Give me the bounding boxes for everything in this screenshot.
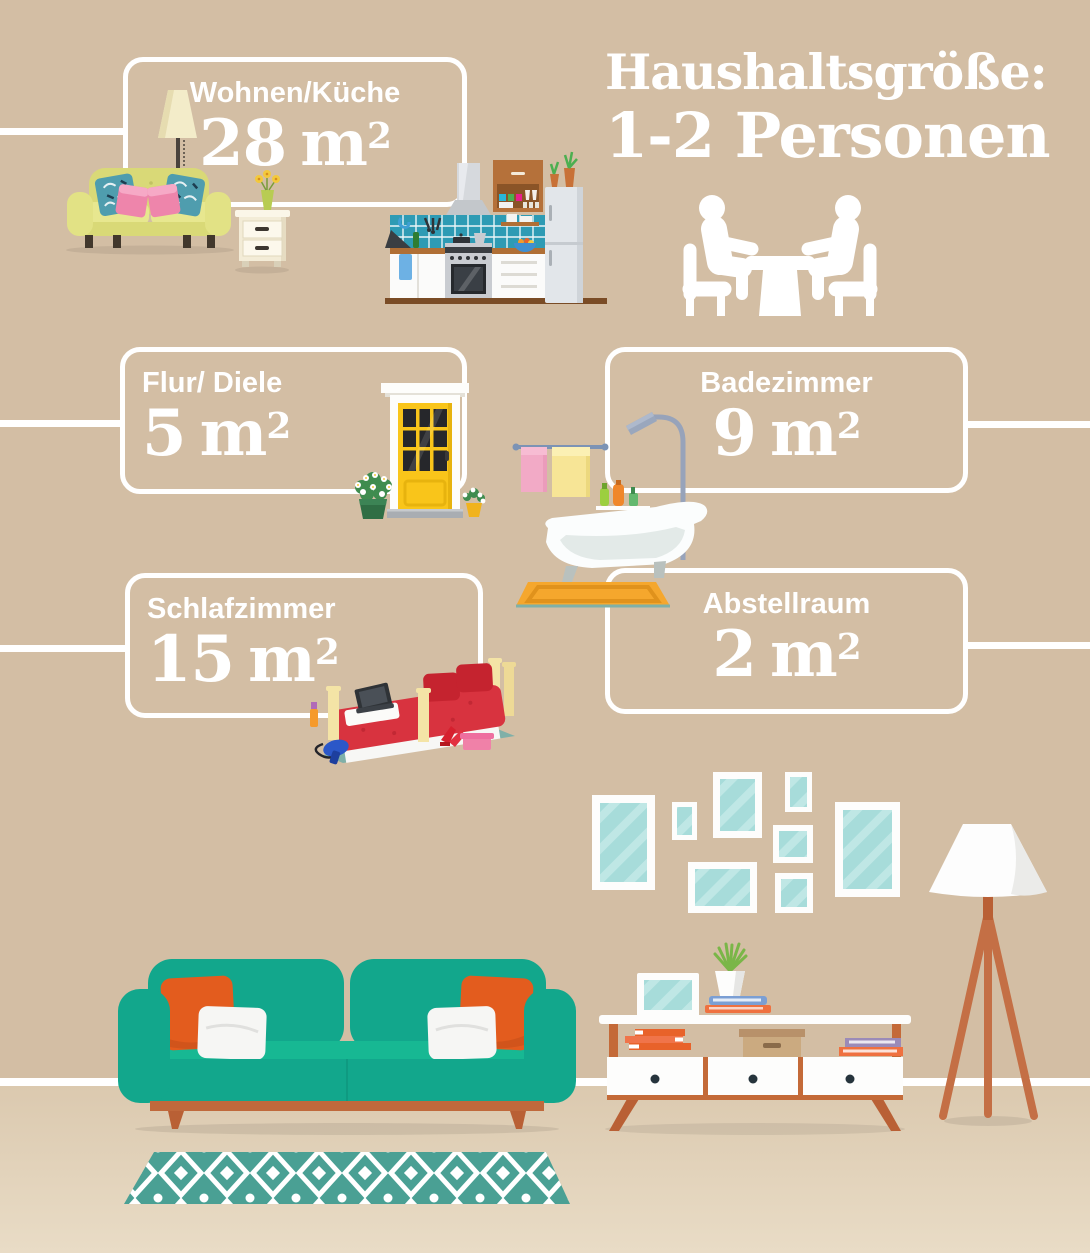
room-area-unit: m bbox=[200, 396, 267, 471]
shelf-books-left bbox=[625, 1029, 691, 1050]
lamp-legs bbox=[943, 913, 1034, 1116]
shelf-books-right bbox=[839, 1038, 903, 1056]
range-hood-icon bbox=[446, 163, 491, 215]
rug-illustration bbox=[112, 1148, 582, 1210]
teal-sofa-illustration bbox=[108, 953, 586, 1135]
connector-line-schlafzimmer bbox=[0, 645, 128, 652]
spray-bottle-icon bbox=[310, 702, 318, 727]
living-room-set-illustration bbox=[55, 82, 300, 274]
room-label: Schlafzimmer bbox=[147, 595, 478, 624]
yellow-sofa-icon bbox=[67, 168, 231, 248]
kitchen-illustration bbox=[373, 150, 618, 310]
storage-box-icon bbox=[739, 1029, 805, 1057]
bathroom-illustration bbox=[508, 390, 720, 612]
wall-cabinet-icon bbox=[493, 160, 543, 212]
room-area-exponent: 2 bbox=[837, 626, 861, 668]
connector-line-abstellraum bbox=[964, 642, 1090, 649]
room-area-unit: m bbox=[770, 396, 837, 471]
room-area-exponent: 2 bbox=[837, 405, 861, 447]
gallery-frames-illustration bbox=[585, 765, 915, 920]
table bbox=[745, 256, 815, 316]
people-at-table-icon bbox=[678, 192, 882, 320]
tabletop-photo-frame bbox=[637, 973, 699, 1017]
room-area: 2m2 bbox=[610, 621, 963, 688]
picture-frame bbox=[592, 772, 900, 913]
tabletop-plant-and-books bbox=[705, 944, 771, 1013]
rug-pattern bbox=[112, 1148, 582, 1210]
nightstand-icon bbox=[235, 170, 290, 267]
teal-sofa-icon bbox=[118, 959, 576, 1129]
room-area-exponent: 2 bbox=[266, 405, 290, 447]
door-icon bbox=[381, 383, 469, 518]
bathtub-icon bbox=[545, 502, 707, 582]
bedroom-illustration bbox=[303, 652, 523, 762]
title-line1: Haushaltsgröße: bbox=[605, 48, 1050, 97]
fridge-icon bbox=[545, 152, 583, 303]
sideboard-icon bbox=[599, 1015, 911, 1131]
title-line2: 1-2 Personen bbox=[605, 105, 1050, 167]
sideboard-illustration bbox=[593, 943, 928, 1135]
lamp-shade bbox=[929, 824, 1047, 897]
room-area-value: 2 bbox=[712, 617, 756, 692]
room-area-unit: m bbox=[770, 617, 837, 692]
infographic-household-size: Wohnen/Küche 28m2 Flur/ Diele 5m2 Badezi… bbox=[0, 0, 1090, 1253]
toiletry-shelf-icon bbox=[596, 480, 650, 510]
page-title: Haushaltsgröße: 1-2 Personen bbox=[605, 48, 1050, 167]
front-door-illustration bbox=[335, 375, 485, 520]
towel-rack-icon bbox=[513, 444, 609, 498]
connector-line-flur bbox=[0, 420, 123, 427]
pink-box-icon bbox=[460, 733, 494, 750]
room-area-value: 15 bbox=[147, 622, 234, 697]
small-potted-flowers-icon bbox=[463, 488, 486, 517]
connector-line-badezimmer bbox=[964, 421, 1090, 428]
tripod-floor-lamp-illustration bbox=[923, 818, 1058, 1128]
bath-mat-icon bbox=[516, 582, 670, 606]
potted-flowers-icon bbox=[355, 472, 392, 519]
room-area-value: 5 bbox=[142, 396, 186, 471]
room-area-unit: m bbox=[300, 106, 367, 181]
